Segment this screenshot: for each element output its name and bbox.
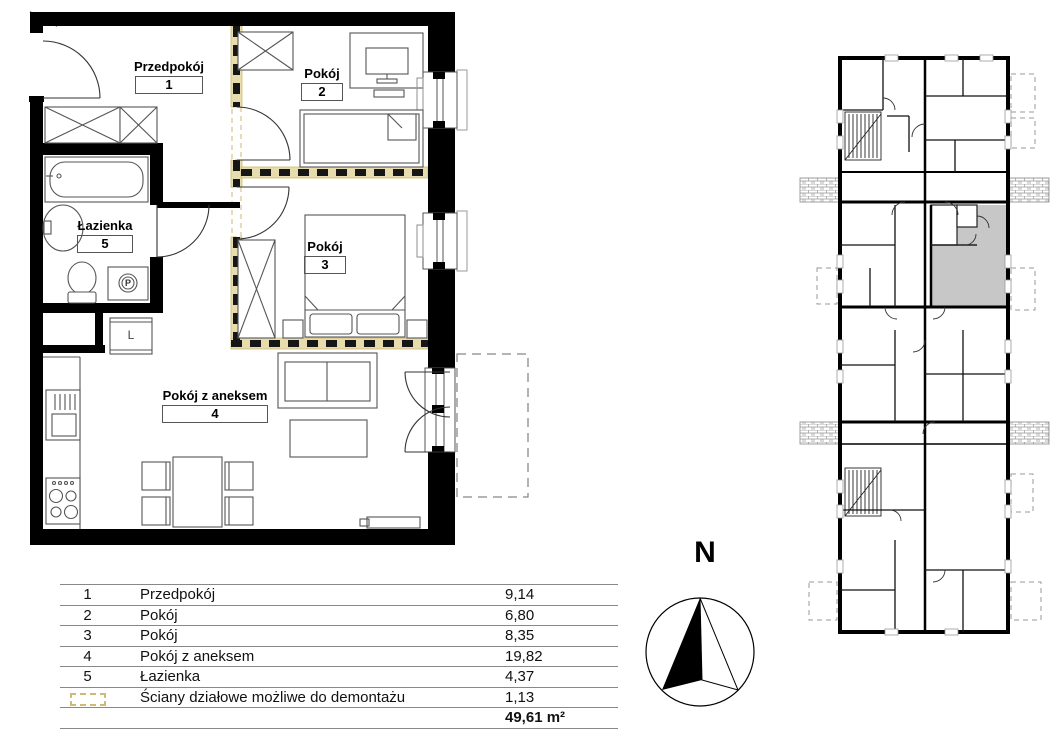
room-name: Pokój [304,66,339,81]
table-row-demountable-walls: Ściany działowe możliwe do demontażu 1,1… [60,687,618,708]
room-label-pokoj-2: Pokój 2 [262,66,382,101]
room-label-lazienka: Łazienka 5 [45,218,165,253]
room2-wardrobe-icon [238,32,293,70]
row-area: 19,82 [505,647,618,667]
room-label-przedpokoj: Przedpokój 1 [109,59,229,94]
hall-wardrobe-icon [45,107,157,143]
radiator-icon [360,517,420,528]
room3-radiator-icon [417,225,423,257]
room-number-box: 1 [135,76,203,94]
row-number: 3 [60,626,115,646]
row-number: 1 [60,585,115,605]
row-area: 9,14 [505,585,618,605]
table-row: 2 Pokój 6,80 [60,605,618,626]
room-label-pokoj-3: Pokój 3 [265,239,385,274]
compass-icon [640,582,770,727]
north-label: N [640,536,770,570]
highlighted-unit [931,205,1006,307]
room-number-box: 2 [301,83,343,101]
bathtub-icon [45,157,148,202]
balcony-outline [457,354,528,497]
row-area: 4,37 [505,667,618,687]
stairwell-bottom [845,468,881,516]
room-number-box: 4 [162,405,268,423]
room-label-pokoj-z-aneksem: Pokój z aneksem 4 [155,388,275,423]
row-area: 8,35 [505,626,618,646]
row-number: 5 [60,667,115,687]
table-row: 3 Pokój 8,35 [60,625,618,646]
area-table: 1 Przedpokój 9,14 2 Pokój 6,80 3 Pokój 8… [60,584,618,729]
single-bed-icon [300,110,423,167]
apartment-floorplan-page: Przedpokój 1 Pokój 2 Pokój 3 Pokój z ane… [0,0,1059,750]
row-name: Ściany działowe możliwe do demontażu [115,688,505,708]
row-area: 1,13 [505,688,618,708]
room-name: Łazienka [78,218,133,233]
closet-label: L [112,328,150,342]
room-name: Przedpokój [134,59,204,74]
demountable-wall-swatch-icon [60,688,115,708]
stove-icon [46,478,80,524]
washer-label: P [114,278,142,288]
row-number: 4 [60,647,115,667]
row-name: Łazienka [115,667,505,687]
building-overview-drawing [795,40,1059,660]
total-area: 49,61 m² [505,708,618,728]
row-area: 6,80 [505,606,618,626]
toilet-icon [68,262,96,303]
stairwell-top [845,112,881,160]
room-name: Pokój [307,239,342,254]
table-row-total: 49,61 m² [60,707,618,729]
sofa-icon [278,353,377,408]
room-number-box: 3 [304,256,346,274]
dining-table-icon [142,457,253,527]
row-number: 2 [60,606,115,626]
balcony-door [405,368,455,452]
room-number-box: 5 [77,235,133,253]
row-name: Pokój z aneksem [115,647,505,667]
table-row: 4 Pokój z aneksem 19,82 [60,646,618,667]
room-name: Pokój z aneksem [163,388,268,403]
table-row: 1 Przedpokój 9,14 [60,584,618,605]
coffee-table-icon [290,420,367,457]
row-name: Pokój [115,626,505,646]
row-name: Przedpokój [115,585,505,605]
table-row: 5 Łazienka 4,37 [60,666,618,687]
row-name: Pokój [115,606,505,626]
kitchen-sink-icon [46,390,80,440]
double-bed-icon [283,215,427,338]
